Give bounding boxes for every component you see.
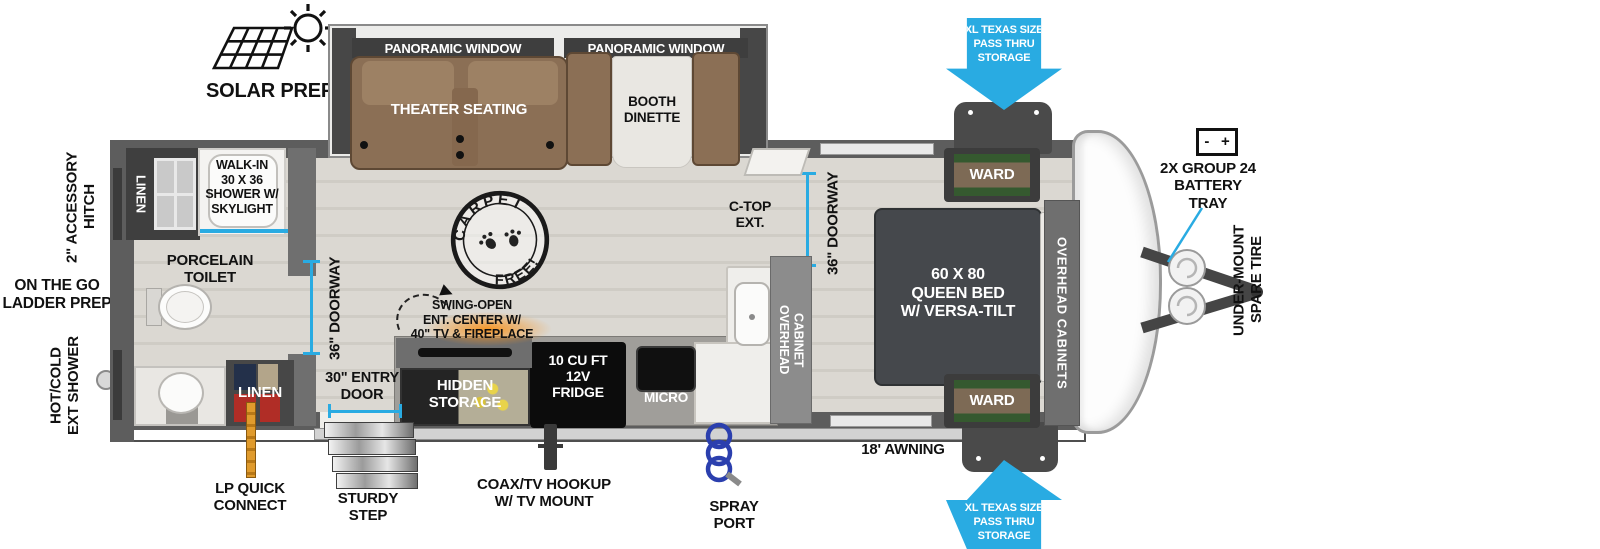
measure-cap: [303, 260, 320, 263]
microwave: [636, 346, 696, 392]
microwave-label: MICRO: [630, 390, 702, 406]
rear-window-top: [113, 168, 122, 240]
battery-tray-label: 2X GROUP 24 BATTERY TRAY: [1146, 160, 1270, 212]
spray-port-coil: [694, 422, 744, 488]
accessory-hitch-label: 2" ACCESSORY HITCH: [56, 146, 106, 268]
cupholder: [360, 141, 368, 149]
booth-dinette-label: BOOTH DINETTE: [612, 94, 692, 125]
shower-threshold: [200, 229, 288, 233]
floorplan-canvas: SOLAR PREP 2" ACCESSORY HITCH ON THE GO …: [0, 0, 1600, 549]
ctop-ext-label: C-TOP EXT.: [716, 198, 784, 230]
entry-steps: [324, 422, 412, 490]
overhead-cabinets-label: OVERHEAD CABINETS: [1044, 200, 1080, 426]
lp-quick-connect-pipe: [246, 402, 256, 478]
hidden-storage-label: HIDDEN STORAGE: [400, 377, 530, 412]
spray-port-label: SPRAY PORT: [686, 498, 782, 533]
rivet: [1040, 456, 1045, 461]
measure-cap: [303, 352, 320, 355]
rear-window-bottom: [113, 350, 122, 420]
bath-doorway-measure: [310, 262, 313, 354]
bedroom-doorway-label: 36" DOORWAY: [818, 164, 848, 282]
panoramic-window-left-label: PANORAMIC WINDOW: [352, 41, 554, 56]
coax-hookup-crossbar: [538, 444, 563, 448]
bedroom-top-window: [820, 143, 934, 155]
ctop-extension: [743, 148, 810, 176]
theater-seat-back-right: [468, 61, 558, 105]
cupholder: [456, 135, 464, 143]
pass-thru-arrow-bottom: XL TEXAS SIZE PASS THRU STORAGE: [946, 460, 1062, 549]
awning-label: 18' AWNING: [848, 441, 958, 458]
coax-label: COAX/TV HOOKUP W/ TV MOUNT: [458, 476, 630, 511]
bath-doorway-label: 36" DOORWAY: [320, 250, 350, 366]
kitchen-counter-horizontal: [694, 342, 778, 424]
dinette-bench-right: [692, 52, 740, 166]
bath-wall-upper: [288, 148, 316, 276]
battery-icon: - +: [1196, 128, 1238, 156]
dinette-bench-left: [566, 52, 612, 166]
entry-door-measure: [330, 410, 400, 413]
tv-bar: [418, 348, 512, 357]
wardrobe-bottom-label: WARD: [944, 392, 1040, 409]
measure-cap: [328, 404, 331, 418]
measure-cap: [399, 404, 402, 418]
pass-thru-arrow-top: XL TEXAS SIZE PASS THRU STORAGE: [946, 18, 1062, 110]
cupholder: [456, 151, 464, 159]
kitchen-overhead-cabinet-label: OVERHEAD CABINET: [770, 256, 812, 424]
vanity-sink: [158, 372, 204, 414]
entry-door-label: 30" ENTRY DOOR: [314, 370, 410, 404]
linen-bottom-label: LINEN: [226, 384, 294, 401]
rivet: [968, 110, 973, 115]
bedroom-doorway-measure: [806, 174, 809, 266]
queen-bed-label: 60 X 80 QUEEN BED W/ VERSA-TILT: [874, 266, 1042, 322]
ext-shower-label: HOT/COLD EXT SHOWER: [42, 330, 88, 442]
spare-tire-label: UNDER-MOUNT SPARE TIRE: [1224, 218, 1272, 342]
ladder-prep-label: ON THE GO LADDER PREP: [0, 277, 114, 313]
theater-seating-label: THEATER SEATING: [360, 101, 558, 118]
sink-faucet: [749, 314, 755, 320]
battery-terminals: - +: [1204, 133, 1229, 150]
walkin-shower-label: WALK-IN 30 X 36 SHOWER W/ SKYLIGHT: [190, 158, 294, 216]
theater-seat-back-left: [362, 61, 454, 105]
fridge-label: 10 CU FT 12V FRIDGE: [530, 352, 626, 401]
sturdy-step-label: STURDY STEP: [318, 490, 418, 525]
bedroom-bottom-window: [830, 415, 932, 427]
cupholder: [546, 141, 554, 149]
toilet-seat: [166, 291, 204, 323]
porcelain-toilet-label: PORCELAIN TOILET: [152, 252, 268, 287]
rivet: [976, 456, 981, 461]
battery-leader-line: [1162, 206, 1208, 266]
lp-quick-connect-label: LP QUICK CONNECT: [202, 480, 298, 515]
linen-top-label: LINEN: [128, 154, 154, 234]
wardrobe-top-label: WARD: [944, 166, 1040, 183]
rivet: [1034, 110, 1039, 115]
